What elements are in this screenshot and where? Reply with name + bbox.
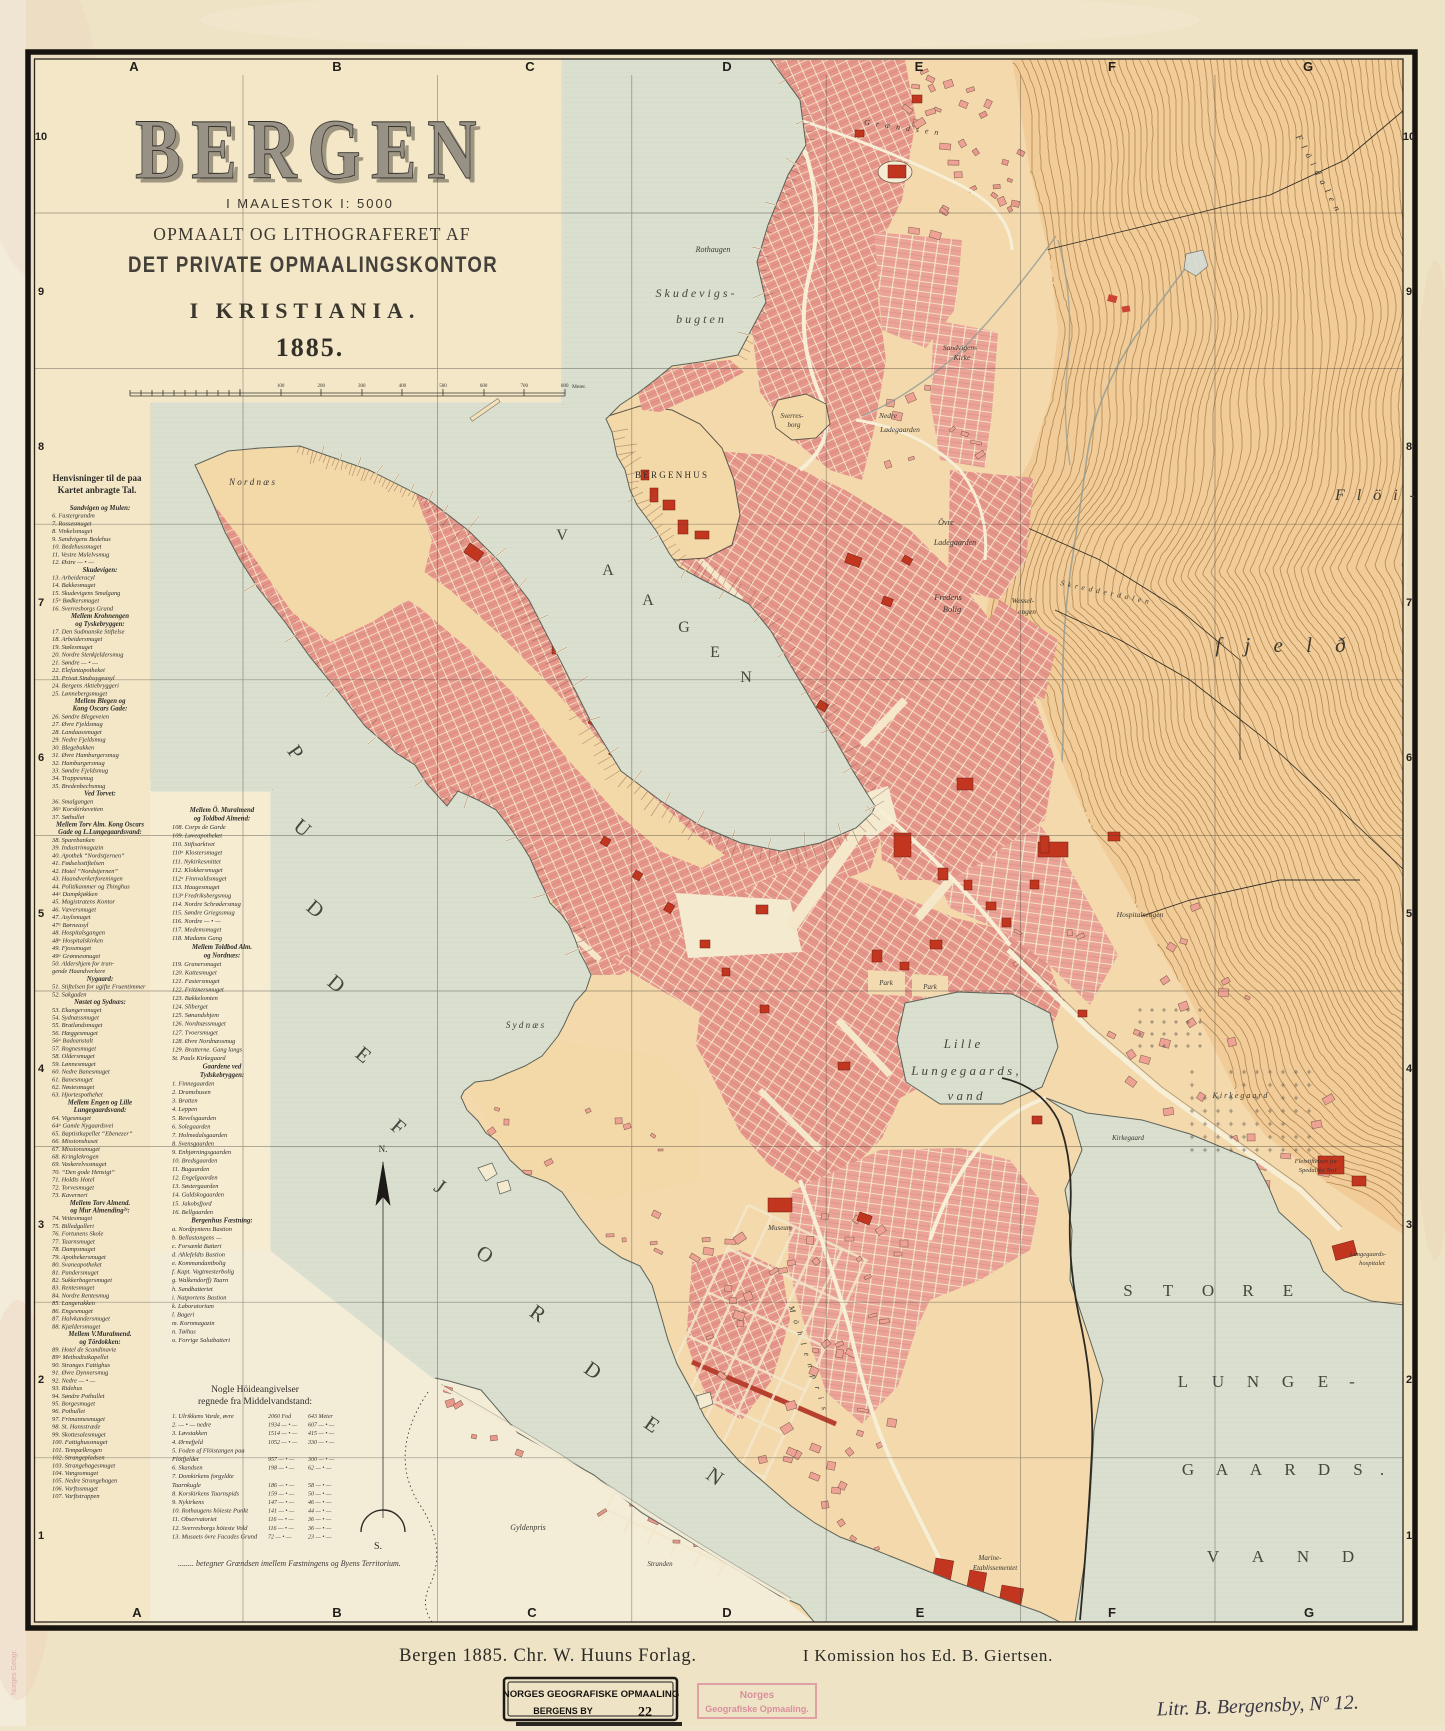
svg-text:v a n d: v a n d <box>947 1088 983 1103</box>
svg-text:7. Domkirkens forgyldte: 7. Domkirkens forgyldte <box>172 1473 234 1480</box>
svg-text:90. Stranges Fattighus: 90. Stranges Fattighus <box>52 1362 111 1369</box>
svg-text:93. Ridehus: 93. Ridehus <box>52 1385 83 1392</box>
svg-text:54. Sydnæssmuget: 54. Sydnæssmuget <box>52 1015 99 1022</box>
svg-text:og Toldbod Almend:: og Toldbod Almend: <box>194 816 251 823</box>
svg-text:26. Søndre Blegeveien: 26. Søndre Blegeveien <box>52 713 109 720</box>
svg-text:OPMAALT OG LITHOGRAFERET AF: OPMAALT OG LITHOGRAFERET AF <box>153 224 470 244</box>
svg-text:33. Søndre Fjeldsmug: 33. Søndre Fjeldsmug <box>51 768 109 775</box>
svg-text:Marine-: Marine- <box>978 1554 1003 1562</box>
svg-text:300 — • —: 300 — • — <box>307 1457 335 1463</box>
svg-text:G: G <box>1303 59 1313 74</box>
svg-text:10: 10 <box>1403 131 1415 143</box>
svg-text:63. Hjortespothehet: 63. Hjortespothehet <box>52 1092 103 1099</box>
svg-text:Kirkegaard: Kirkegaard <box>1111 1134 1145 1142</box>
svg-text:607 — • —: 607 — • — <box>308 1423 335 1429</box>
svg-text:B: B <box>332 59 341 74</box>
svg-text:B E R G E N H U S: B E R G E N H U S <box>635 470 707 480</box>
svg-text:Lungegaardsvand:: Lungegaardsvand: <box>73 1107 127 1114</box>
svg-text:119. Granersmuget: 119. Granersmuget <box>172 961 221 968</box>
svg-text:2. — • — nedre: 2. — • — nedre <box>172 1422 211 1429</box>
svg-text:hospitalet: hospitalet <box>1359 1260 1385 1267</box>
svg-text:11. Vestre Mulelvsmug: 11. Vestre Mulelvsmug <box>52 551 110 558</box>
svg-text:U: U <box>1212 1372 1224 1391</box>
svg-text:100. Fattighussmuget: 100. Fattighussmuget <box>52 1439 108 1446</box>
svg-text:13. Musaets övre Facades Grund: 13. Musaets övre Facades Grund <box>172 1533 258 1540</box>
svg-text:36. Smalgangen: 36. Smalgangen <box>51 798 93 805</box>
svg-text:-: - <box>1349 1372 1355 1391</box>
svg-text:50 — • —: 50 — • — <box>308 1491 332 1497</box>
svg-text:i. Natportens Bastion: i. Natportens Bastion <box>172 1294 227 1301</box>
svg-text:39. Industrimagazin: 39. Industrimagazin <box>51 845 103 852</box>
svg-text:100: 100 <box>277 384 285 389</box>
svg-text:Sandvigens: Sandvigens <box>943 343 977 352</box>
svg-text:3: 3 <box>38 1219 44 1231</box>
svg-text:D: D <box>722 1605 731 1620</box>
svg-text:59. Lønnesmuget: 59. Lønnesmuget <box>52 1061 96 1068</box>
svg-text:Nygaard:: Nygaard: <box>86 976 113 983</box>
svg-text:Gade og L.Lungegaardsvand:: Gade og L.Lungegaardsvand: <box>58 829 142 836</box>
svg-text:44 — • —: 44 — • — <box>308 1508 332 1515</box>
svg-text:a. Nordpyntens Bastion: a. Nordpyntens Bastion <box>172 1226 232 1233</box>
svg-text:8: 8 <box>38 441 44 453</box>
svg-text:2. Dramshusen: 2. Dramshusen <box>172 1089 211 1096</box>
svg-text:113. Haugesmuget: 113. Haugesmuget <box>172 884 220 891</box>
svg-text:G: G <box>1304 1605 1314 1620</box>
svg-text:5: 5 <box>1406 908 1412 920</box>
svg-text:120. Kattesmuget: 120. Kattesmuget <box>172 969 217 976</box>
svg-text:87. Halvkandersmuget: 87. Halvkandersmuget <box>52 1316 110 1323</box>
svg-text:129. Bratterne. Gang langs: 129. Bratterne. Gang langs <box>172 1046 243 1053</box>
svg-text:1: 1 <box>38 1530 44 1542</box>
svg-text:44. Politikammer og Thinghus: 44. Politikammer og Thinghus <box>52 883 130 890</box>
svg-text:4: 4 <box>38 1063 45 1075</box>
svg-text:12. Sverresborgs höieste Vold: 12. Sverresborgs höieste Vold <box>172 1525 248 1532</box>
svg-text:G: G <box>1182 1460 1194 1479</box>
svg-text:1: 1 <box>1406 1530 1412 1542</box>
svg-text:125. Sønandshjem: 125. Sønandshjem <box>172 1012 219 1019</box>
svg-text:58. Oldersmuget: 58. Oldersmuget <box>52 1053 95 1060</box>
svg-text:68. Kringlekrogen: 68. Kringlekrogen <box>52 1154 99 1161</box>
svg-text:A: A <box>1216 1460 1229 1479</box>
svg-text:N o r d n æ s: N o r d n æ s <box>228 477 276 487</box>
svg-text:b. Bellastangens —: b. Bellastangens — <box>172 1235 222 1242</box>
svg-text:D: D <box>722 59 731 74</box>
svg-text:85. Langerakken: 85. Langerakken <box>52 1300 95 1307</box>
svg-text:16. Bellgaarden: 16. Bellgaarden <box>172 1209 213 1216</box>
svg-text:DET PRIVATE OPMAALINGSKONTOR: DET PRIVATE OPMAALINGSKONTOR <box>128 252 498 277</box>
svg-text:88. Kjældersmuget: 88. Kjældersmuget <box>52 1323 101 1330</box>
svg-text:89. Hotel de Scandinavie: 89. Hotel de Scandinavie <box>52 1347 116 1354</box>
svg-text:E: E <box>1283 1281 1293 1300</box>
svg-text:Bergen 1885. Chr. W. Huuns F: Bergen 1885. Chr. W. Huuns Forlag. <box>399 1646 697 1666</box>
svg-text:1934 — • —: 1934 — • — <box>268 1422 298 1429</box>
svg-text:19. Stølesmuget: 19. Stølesmuget <box>52 644 93 651</box>
svg-text:11. Bugaarden: 11. Bugaarden <box>172 1166 209 1173</box>
svg-text:122. Fritznersmuget: 122. Fritznersmuget <box>172 987 224 994</box>
svg-text:110. Stiftsarkivet: 110. Stiftsarkivet <box>172 841 215 848</box>
svg-text:34. Trappesmug: 34. Trappesmug <box>51 775 94 782</box>
svg-text:700: 700 <box>520 384 528 389</box>
svg-text:89ᵃ Methodistkapellet: 89ᵃ Methodistkapellet <box>52 1354 109 1361</box>
svg-text:18. Arbeidersmuget: 18. Arbeidersmuget <box>52 636 103 643</box>
svg-text:Sandvigen og Mulen:: Sandvigen og Mulen: <box>70 505 130 512</box>
svg-text:111. Nykirkesmittet: 111. Nykirkesmittet <box>172 858 221 865</box>
svg-text:643 Meter: 643 Meter <box>308 1413 333 1420</box>
svg-text:O: O <box>1202 1281 1214 1300</box>
svg-text:6: 6 <box>38 752 44 764</box>
svg-text:117. Medemsmuget: 117. Medemsmuget <box>172 927 221 934</box>
svg-text:R: R <box>1242 1281 1254 1300</box>
svg-text:95. Borgesmuget: 95. Borgesmuget <box>52 1401 95 1408</box>
svg-text:600: 600 <box>480 384 488 389</box>
svg-text:og Tördokken:: og Tördokken: <box>79 1339 120 1346</box>
svg-text:Museum: Museum <box>767 1224 792 1232</box>
svg-text:Fredens: Fredens <box>933 592 962 602</box>
svg-text:Nedre: Nedre <box>878 411 898 420</box>
svg-text:80. Svaneapotheket: 80. Svaneapotheket <box>52 1262 102 1269</box>
svg-text:22. Elefantapotheket: 22. Elefantapotheket <box>52 667 105 674</box>
svg-text:Nogle Höideangivelser: Nogle Höideangivelser <box>211 1385 300 1395</box>
svg-text:55. Bratlandsmuget: 55. Bratlandsmuget <box>52 1022 103 1029</box>
svg-text:n. Tøihus: n. Tøihus <box>172 1329 196 1336</box>
svg-text:7: 7 <box>38 597 44 609</box>
svg-text:9. Enhjørningsgaarden: 9. Enhjørningsgaarden <box>172 1149 231 1156</box>
svg-text:957 — • —: 957 — • — <box>268 1457 295 1463</box>
svg-text:S y d n æ s: S y d n æ s <box>506 1020 545 1030</box>
svg-text:S: S <box>1353 1460 1362 1479</box>
svg-text:f. Kapt. Vagtmesterbolig: f. Kapt. Vagtmesterbolig <box>172 1269 235 1276</box>
svg-text:Henvisninger til de paa: Henvisninger til de paa <box>52 473 142 483</box>
svg-text:71. Holdts Hotel: 71. Holdts Hotel <box>52 1177 95 1184</box>
svg-text:g. Walkendorff) Taarn: g. Walkendorff) Taarn <box>172 1277 228 1284</box>
svg-text:I MAALESTOK I: 5000: I MAALESTOK I: 5000 <box>226 196 394 211</box>
svg-text:112. Klokkersmuget: 112. Klokkersmuget <box>172 867 223 874</box>
svg-text:Mellem Krohnengen: Mellem Krohnengen <box>70 613 129 620</box>
svg-text:186 — • —: 186 — • — <box>268 1483 295 1489</box>
svg-text:9. Nykirkens: 9. Nykirkens <box>172 1499 204 1506</box>
svg-text:6: 6 <box>1406 752 1412 764</box>
svg-text:13. Arbeideracyl: 13. Arbeideracyl <box>52 575 95 582</box>
svg-text:49ᵃ Grønnesmuget: 49ᵃ Grønnesmuget <box>52 953 100 960</box>
svg-text:Kartet anbragte Tal.: Kartet anbragte Tal. <box>58 485 137 495</box>
svg-text:Skudevigen:: Skudevigen: <box>83 567 118 574</box>
svg-text:51. Stiftelsen for ugifte Frue: 51. Stiftelsen for ugifte Fruentimmer <box>52 984 146 991</box>
svg-text:e. Kommandantbolig: e. Kommandantbolig <box>172 1260 226 1267</box>
svg-text:116 — • —: 116 — • — <box>268 1526 294 1532</box>
svg-text:G: G <box>1282 1372 1294 1391</box>
svg-text:124. Sliberget: 124. Sliberget <box>172 1004 208 1011</box>
svg-text:Tydskebryggen:: Tydskebryggen: <box>200 1072 244 1079</box>
svg-text:67. Missionsmuget: 67. Missionsmuget <box>52 1146 100 1153</box>
svg-text:198 — • —: 198 — • — <box>268 1466 295 1472</box>
svg-text:V: V <box>1207 1547 1220 1566</box>
svg-text:56ᵃ Badeanstalt: 56ᵃ Badeanstalt <box>52 1038 93 1045</box>
svg-text:Mellem Blegen og: Mellem Blegen og <box>74 698 127 705</box>
svg-text:A: A <box>1252 1547 1265 1566</box>
svg-text:F l ö i -: F l ö i - <box>1334 487 1419 504</box>
svg-text:Ved Torvet:: Ved Torvet: <box>84 791 116 798</box>
svg-text:800: 800 <box>561 384 569 389</box>
svg-text:R: R <box>1284 1460 1296 1479</box>
svg-text:A: A <box>132 1605 142 1620</box>
svg-text:8: 8 <box>1406 441 1412 453</box>
svg-text:7. Rossesmuget: 7. Rossesmuget <box>52 520 92 527</box>
svg-text:d. Ahlefeldts Bastion: d. Ahlefeldts Bastion <box>172 1252 225 1259</box>
svg-text:k. Laboratorium: k. Laboratorium <box>172 1303 214 1310</box>
svg-text:l. Bageri: l. Bageri <box>172 1311 195 1318</box>
svg-text:h. Sandbatteriet: h. Sandbatteriet <box>172 1286 213 1293</box>
svg-text:Stranden: Stranden <box>647 1560 673 1568</box>
svg-text:Sverres-: Sverres- <box>780 412 804 420</box>
svg-text:47. Asylsmuget: 47. Asylsmuget <box>52 914 91 921</box>
svg-text:44ᵃ Dampkjøkken: 44ᵃ Dampkjøkken <box>52 891 98 898</box>
svg-text:........ betegner Grændsen im: ........ betegner Grændsen imellem Fæstn… <box>178 1559 401 1568</box>
svg-text:4. Leppen: 4. Leppen <box>172 1106 197 1113</box>
svg-text:31. Øvre Hamburgersmug: 31. Øvre Hamburgersmug <box>51 752 120 759</box>
svg-text:o. Forrige Salutbatteri: o. Forrige Salutbatteri <box>172 1337 230 1344</box>
svg-text:4. Ørnefjeld: 4. Ørnefjeld <box>172 1439 204 1446</box>
svg-text:engen: engen <box>1018 607 1036 616</box>
svg-text:86. Engesmuget: 86. Engesmuget <box>52 1308 93 1315</box>
svg-text:23. Privat Sindssygeasyl: 23. Privat Sindssygeasyl <box>52 675 115 682</box>
svg-text:Övre: Övre <box>938 518 954 527</box>
svg-text:og Tyskebryggen:: og Tyskebryggen: <box>75 621 124 628</box>
svg-text:2060 Fod: 2060 Fod <box>268 1414 292 1420</box>
svg-text:Ladegaarden: Ladegaarden <box>879 425 920 434</box>
svg-text:10. Bedehussmuget: 10. Bedehussmuget <box>52 544 102 551</box>
svg-text:415 — • —: 415 — • — <box>308 1430 335 1437</box>
svg-text:101. Tempælkrogen: 101. Tempælkrogen <box>52 1447 102 1454</box>
svg-text:Fleistiftelsen for: Fleistiftelsen for <box>1294 1158 1338 1165</box>
svg-text:200: 200 <box>317 384 325 389</box>
svg-text:21. Søndre — • —: 21. Søndre — • — <box>52 659 98 666</box>
svg-text:8. Vinkelsmuget: 8. Vinkelsmuget <box>52 528 93 535</box>
svg-text:Wessel-: Wessel- <box>1012 596 1035 605</box>
svg-text:E: E <box>916 1605 925 1620</box>
svg-text:103. Strangehagesmuget: 103. Strangehagesmuget <box>52 1462 115 1469</box>
svg-text:81. Pandersmuget: 81. Pandersmuget <box>52 1269 99 1276</box>
svg-text:L u n g e g a a r d s ,: L u n g e g a a r d s , <box>910 1063 1018 1078</box>
svg-text:82. Sukkerbagersmuget: 82. Sukkerbagersmuget <box>52 1277 112 1284</box>
svg-text:159 — • —: 159 — • — <box>268 1491 295 1497</box>
svg-text:109. Løveapotheket: 109. Løveapotheket <box>172 833 222 840</box>
svg-text:25. Lønnebergsmuget: 25. Lønnebergsmuget <box>52 690 107 697</box>
svg-text:1514 — • —: 1514 — • — <box>268 1430 298 1437</box>
svg-text:C: C <box>527 1605 537 1620</box>
svg-text:46 — • —: 46 — • — <box>308 1499 332 1506</box>
svg-text:.: . <box>1380 1460 1384 1479</box>
svg-text:123. Bakkelomten: 123. Bakkelomten <box>172 995 218 1002</box>
svg-text:73. Kaverneri: 73. Kaverneri <box>52 1192 88 1199</box>
svg-text:K i r k e g a a r d: K i r k e g a a r d <box>1212 1091 1269 1100</box>
svg-text:og Mur Almending²ᵉ:: og Mur Almending²ᵉ: <box>70 1208 130 1215</box>
svg-text:300: 300 <box>358 384 366 389</box>
svg-text:64ᵃ Gamle Nygaardsvei: 64ᵃ Gamle Nygaardsvei <box>52 1123 113 1130</box>
svg-text:Nøstet og Sydnæs:: Nøstet og Sydnæs: <box>73 999 126 1006</box>
svg-text:Norges Geogr.: Norges Geogr. <box>11 1649 18 1695</box>
svg-text:A: A <box>129 59 139 74</box>
svg-text:f j e l ð: f j e l ð <box>1215 633 1354 657</box>
svg-text:400: 400 <box>399 384 407 389</box>
svg-text:Bergenhus Fæstning:: Bergenhus Fæstning: <box>190 1217 252 1224</box>
svg-text:17. Den Sudmanske Stiftelse: 17. Den Sudmanske Stiftelse <box>52 629 125 636</box>
svg-text:C: C <box>525 59 535 74</box>
svg-text:40. Apothek “Nordstjernen”: 40. Apothek “Nordstjernen” <box>52 852 125 859</box>
svg-text:113ᵇ Fredriksbergsmug: 113ᵇ Fredriksbergsmug <box>172 893 232 900</box>
svg-text:Mellem Toldbod Alm.: Mellem Toldbod Alm. <box>191 944 252 951</box>
svg-text:10. Rothaugens höieste Punkt: 10. Rothaugens höieste Punkt <box>172 1508 248 1515</box>
svg-text:St. Pauls Kirkegaard: St. Pauls Kirkegaard <box>172 1055 226 1062</box>
svg-text:41. Fødselsstiftelsen: 41. Fødselsstiftelsen <box>52 860 104 867</box>
svg-text:99. Skottesalesmuget: 99. Skottesalesmuget <box>52 1431 106 1438</box>
svg-text:35. Bredenbechsmug: 35. Bredenbechsmug <box>51 783 106 790</box>
svg-text:1052 — • —: 1052 — • — <box>268 1440 298 1446</box>
svg-text:E: E <box>710 644 720 661</box>
svg-text:b u g t e n: b u g t e n <box>676 312 724 326</box>
svg-text:8. Korskirkens Taarnspids: 8. Korskirkens Taarnspids <box>172 1490 240 1497</box>
svg-text:Kong Oscars Gade:: Kong Oscars Gade: <box>72 706 128 713</box>
svg-text:115. Søndre Griegssmug: 115. Søndre Griegssmug <box>172 910 235 917</box>
svg-text:Geografiske Opmaaling.: Geografiske Opmaaling. <box>705 1704 809 1714</box>
svg-text:79. Apothekersmuget: 79. Apothekersmuget <box>52 1254 106 1261</box>
svg-text:97. Frimannesmuget: 97. Frimannesmuget <box>52 1416 105 1423</box>
svg-text:A: A <box>642 592 654 609</box>
svg-text:14. Guldskogaarden: 14. Guldskogaarden <box>172 1192 224 1199</box>
svg-text:72 — • —: 72 — • — <box>268 1534 292 1540</box>
svg-text:F: F <box>1108 59 1116 74</box>
svg-text:2: 2 <box>38 1374 44 1386</box>
svg-text:27. Øvre Fjeldsmug: 27. Øvre Fjeldsmug <box>52 721 104 728</box>
svg-text:46. Væversmuget: 46. Væversmuget <box>52 906 96 913</box>
svg-text:10: 10 <box>35 131 47 143</box>
svg-text:Mellem Torv Almend.: Mellem Torv Almend. <box>69 1200 131 1207</box>
svg-text:E: E <box>915 59 924 74</box>
svg-text:Flöifjeldet: Flöifjeldet <box>171 1456 199 1463</box>
svg-text:5: 5 <box>38 908 44 920</box>
svg-text:96. Pothullet: 96. Pothullet <box>52 1408 85 1415</box>
svg-text:121. Fastersmuget: 121. Fastersmuget <box>172 978 220 985</box>
svg-text:Ladegaarden: Ladegaarden <box>933 538 976 547</box>
svg-text:110ᵃ Klostersmuget: 110ᵃ Klostersmuget <box>172 850 222 857</box>
svg-text:45. Magistratens Kontor: 45. Magistratens Kontor <box>52 899 116 906</box>
svg-text:N: N <box>740 669 752 686</box>
svg-text:NORGES GEOGRAFISKE OPMAALING: NORGES GEOGRAFISKE OPMAALING <box>503 1689 679 1700</box>
svg-text:m. Kornmagazin: m. Kornmagazin <box>172 1320 215 1327</box>
svg-text:32. Hamburgersmug: 32. Hamburgersmug <box>51 760 105 767</box>
svg-text:Meter.: Meter. <box>572 384 587 390</box>
svg-text:50. Aldershjem for tran-: 50. Aldershjem for tran- <box>52 961 114 968</box>
svg-text:116. Nordre — • —: 116. Nordre — • — <box>172 918 221 925</box>
svg-text:5. Foden af Flöistangen paa: 5. Foden af Flöistangen paa <box>172 1447 245 1454</box>
svg-text:107. Varftstrappen: 107. Varftstrappen <box>52 1493 100 1500</box>
svg-text:43. Haandverkerforeningen: 43. Haandverkerforeningen <box>52 876 123 883</box>
svg-text:Lungegaards-: Lungegaards- <box>1349 1251 1386 1258</box>
svg-text:Taarnkugle: Taarnkugle <box>172 1482 201 1489</box>
svg-text:12. Østre — • —: 12. Østre — • — <box>52 559 94 566</box>
svg-text:V: V <box>556 527 568 544</box>
svg-text:BERGEN: BERGEN <box>135 101 487 197</box>
svg-text:15. Skudevigens Smalgang: 15. Skudevigens Smalgang <box>52 590 121 597</box>
svg-text:60. Nedre Banesmuget: 60. Nedre Banesmuget <box>52 1069 110 1076</box>
svg-text:3. Løvstakken: 3. Løvstakken <box>171 1430 207 1437</box>
svg-text:330 — • —: 330 — • — <box>307 1440 335 1446</box>
svg-text:127. Tvoersmuget: 127. Tvoersmuget <box>172 1029 218 1036</box>
svg-text:1. Finnegaarden: 1. Finnegaarden <box>172 1081 214 1088</box>
svg-text:6. Skandsen: 6. Skandsen <box>172 1465 203 1472</box>
svg-text:D: D <box>1318 1460 1330 1479</box>
svg-text:I KRISTIANIA.: I KRISTIANIA. <box>190 298 421 323</box>
svg-text:S: S <box>1123 1281 1132 1300</box>
svg-text:Kirke: Kirke <box>953 353 971 362</box>
svg-text:BERGENS BY: BERGENS BY <box>533 1706 593 1716</box>
svg-text:gende Haandverkere: gende Haandverkere <box>52 968 105 975</box>
svg-text:1. Ulrikkens Varde, øvre: 1. Ulrikkens Varde, øvre <box>172 1413 234 1420</box>
svg-text:8. Svensgaarden: 8. Svensgaarden <box>172 1140 214 1147</box>
svg-text:7. Holmedalsgaarden: 7. Holmedalsgaarden <box>172 1132 227 1139</box>
svg-text:3: 3 <box>1406 1219 1412 1231</box>
svg-text:47ᵃ Børneasyl: 47ᵃ Børneasyl <box>52 922 89 929</box>
svg-text:6. Fastergrandm: 6. Fastergrandm <box>52 513 95 520</box>
svg-text:9: 9 <box>1406 286 1412 298</box>
svg-text:48ᵃ Hospitalskirken: 48ᵃ Hospitalskirken <box>52 937 103 944</box>
svg-text:70. “Den gode Hensigt”: 70. “Den gode Hensigt” <box>52 1169 115 1176</box>
svg-text:102. Strangepladsen: 102. Strangepladsen <box>52 1455 105 1462</box>
svg-text:15ᵃ Bødkersmuget: 15ᵃ Bødkersmuget <box>52 598 99 605</box>
svg-text:118. Madams Gang: 118. Madams Gang <box>172 935 223 942</box>
svg-text:Park: Park <box>922 983 938 991</box>
svg-text:Rothaugen: Rothaugen <box>695 245 731 254</box>
svg-text:61. Banesmuget: 61. Banesmuget <box>52 1076 93 1083</box>
svg-text:2: 2 <box>1406 1374 1412 1386</box>
svg-text:36 — • —: 36 — • — <box>307 1526 332 1532</box>
svg-text:Mellem Ö. Muralmend: Mellem Ö. Muralmend <box>189 807 255 814</box>
svg-text:30. Blegebakken: 30. Blegebakken <box>51 744 94 751</box>
svg-text:D: D <box>1342 1547 1354 1566</box>
svg-text:A: A <box>602 562 614 579</box>
svg-text:borg: borg <box>788 421 801 429</box>
svg-text:105. Nedre Strangehagen: 105. Nedre Strangehagen <box>52 1478 117 1485</box>
svg-text:76. Fortunens Skole: 76. Fortunens Skole <box>52 1231 103 1238</box>
svg-text:10. Bredsgaarden: 10. Bredsgaarden <box>172 1158 217 1165</box>
svg-text:9. Sandvigens Bedehus: 9. Sandvigens Bedehus <box>52 536 111 543</box>
svg-text:Gyldenpris: Gyldenpris <box>510 1523 546 1532</box>
svg-text:7: 7 <box>1406 597 1412 609</box>
svg-text:28. Landaassmuget: 28. Landaassmuget <box>52 729 102 736</box>
svg-text:57. Rognesmuget: 57. Rognesmuget <box>52 1045 96 1052</box>
svg-text:1885.: 1885. <box>276 333 345 362</box>
svg-text:Etablissementet: Etablissementet <box>972 1564 1018 1572</box>
svg-text:147 — • —: 147 — • — <box>268 1499 295 1506</box>
svg-text:16. Sverresborgs Grand: 16. Sverresborgs Grand <box>52 605 114 612</box>
svg-text:Bolig: Bolig <box>943 604 961 614</box>
svg-text:6. Solegaarden: 6. Solegaarden <box>172 1123 210 1130</box>
svg-text:14. Bakkesmuget: 14. Bakkesmuget <box>52 582 96 589</box>
svg-text:S k u d e v i g s -: S k u d e v i g s - <box>656 286 735 300</box>
svg-text:9: 9 <box>38 286 44 298</box>
svg-text:62. Nøstesmuget: 62. Nøstesmuget <box>52 1084 94 1091</box>
svg-text:114. Nordre Schrødersmug: 114. Nordre Schrødersmug <box>172 901 242 908</box>
svg-text:98. St. Hansstræde: 98. St. Hansstræde <box>52 1424 100 1431</box>
svg-text:Park: Park <box>878 979 894 987</box>
svg-text:141 — • —: 141 — • — <box>268 1508 295 1515</box>
svg-text:36ᵃ Korskirkeveiten: 36ᵃ Korskirkeveiten <box>51 806 103 813</box>
svg-text:58 — • —: 58 — • — <box>308 1483 332 1489</box>
svg-text:N: N <box>1247 1372 1259 1391</box>
svg-text:5. Revelsgaarden: 5. Revelsgaarden <box>172 1115 216 1122</box>
svg-text:91. Øvre Dynnersmug: 91. Øvre Dynnersmug <box>52 1370 109 1377</box>
svg-text:G: G <box>678 619 690 636</box>
svg-text:Gaardene ved: Gaardene ved <box>203 1064 242 1071</box>
